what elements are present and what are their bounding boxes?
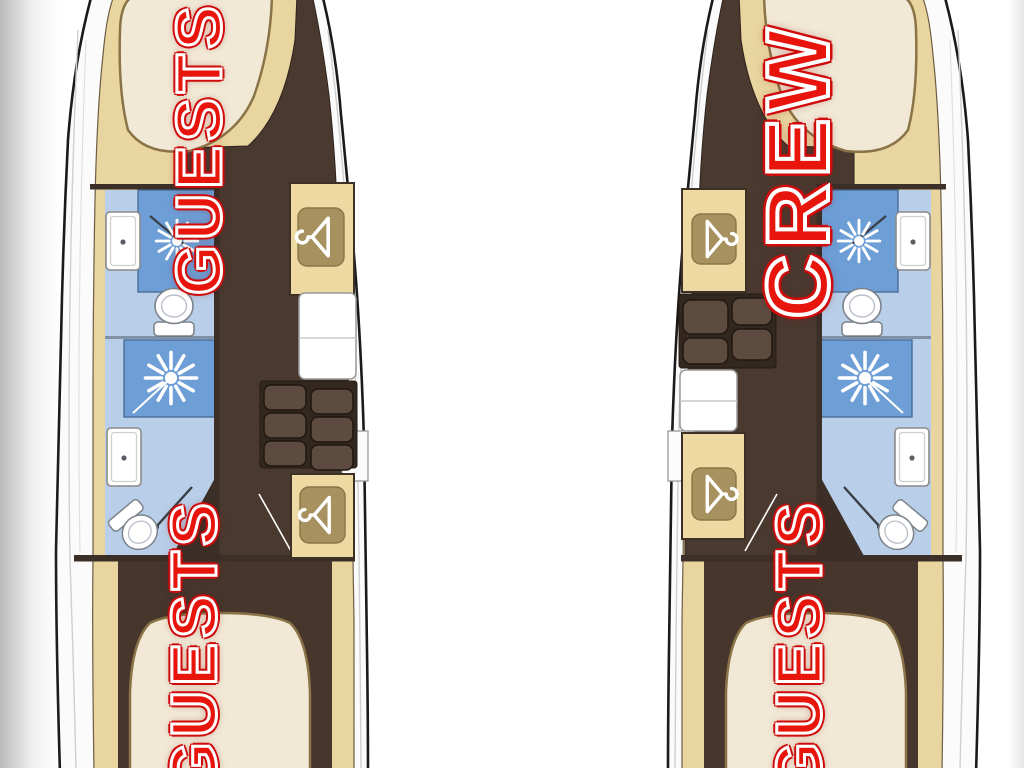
berth-seat	[299, 293, 356, 379]
zone-label-port-bow: GUESTS	[167, 1, 231, 295]
zone-label-port-aft: GUESTS	[162, 498, 226, 768]
zone-label-starboard-bow: CREW	[754, 21, 842, 318]
catamaran-deck-plan: GUESTS GUESTS CREW GUESTS	[0, 0, 1024, 768]
wardrobe	[682, 433, 745, 539]
berth-seat	[680, 370, 737, 431]
companionway-steps	[260, 381, 357, 470]
floor-plan-svg	[0, 0, 1024, 768]
wardrobe	[290, 183, 354, 295]
zone-label-starboard-aft: GUESTS	[767, 498, 831, 768]
wardrobe	[291, 474, 354, 558]
wardrobe	[682, 189, 746, 292]
